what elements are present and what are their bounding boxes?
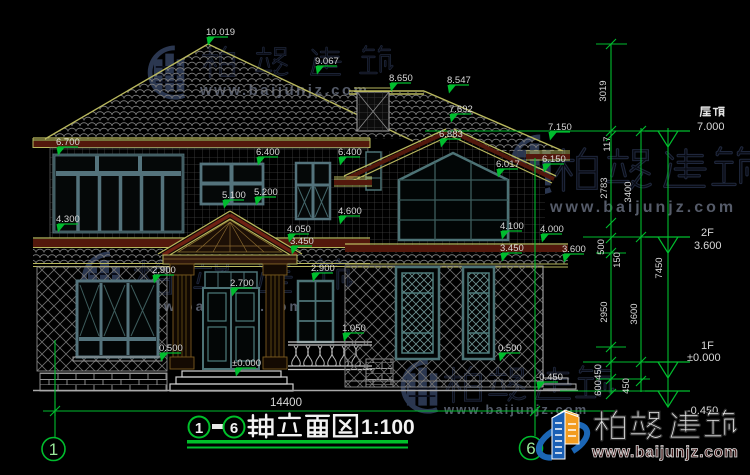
svg-text:3.450: 3.450 [500, 243, 524, 254]
svg-text:6.017: 6.017 [496, 159, 520, 170]
svg-text:1.050: 1.050 [342, 323, 366, 334]
svg-text:9.067: 9.067 [315, 56, 339, 67]
svg-text:4.300: 4.300 [56, 214, 80, 225]
svg-text:www.baijunjz.com: www.baijunjz.com [591, 444, 739, 461]
svg-text:3019: 3019 [598, 80, 609, 101]
svg-text:6.150: 6.150 [542, 154, 566, 165]
svg-text:6.400: 6.400 [256, 147, 280, 158]
svg-text:6: 6 [526, 439, 535, 458]
svg-text:2.900: 2.900 [152, 265, 176, 276]
svg-text:www.baijunjz.com: www.baijunjz.com [549, 199, 736, 216]
svg-text:3600: 3600 [629, 303, 640, 324]
svg-text:6.700: 6.700 [56, 137, 80, 148]
svg-text:6.400: 6.400 [338, 147, 362, 158]
svg-text:±0.000: ±0.000 [687, 352, 721, 364]
svg-text:4.100: 4.100 [500, 221, 524, 232]
svg-text:500: 500 [596, 239, 607, 255]
svg-text:10.019: 10.019 [206, 27, 235, 38]
svg-text:7.000: 7.000 [697, 121, 725, 133]
svg-text:4.000: 4.000 [540, 224, 564, 235]
svg-text:5.100: 5.100 [222, 190, 246, 201]
svg-text:7.692: 7.692 [449, 104, 473, 115]
svg-text:450: 450 [593, 364, 604, 380]
svg-text:3.600: 3.600 [694, 240, 722, 252]
svg-text:1: 1 [49, 440, 58, 459]
svg-text:±0.000: ±0.000 [232, 358, 261, 369]
svg-text:2.900: 2.900 [311, 263, 335, 274]
svg-text:3.450: 3.450 [290, 236, 314, 247]
svg-text:8.547: 8.547 [447, 75, 471, 86]
svg-text:0.500: 0.500 [498, 343, 522, 354]
svg-text:1:100: 1:100 [361, 416, 415, 439]
svg-text:117: 117 [602, 136, 613, 151]
svg-text:4.600: 4.600 [338, 206, 362, 217]
svg-text:3.600: 3.600 [562, 244, 586, 255]
svg-text:6.883: 6.883 [439, 129, 463, 140]
svg-text:2950: 2950 [599, 301, 610, 322]
svg-text:5.200: 5.200 [254, 187, 278, 198]
svg-text:-0.450: -0.450 [536, 372, 563, 383]
svg-text:14400: 14400 [270, 397, 302, 409]
svg-text:600: 600 [593, 380, 604, 396]
svg-text:0.500: 0.500 [159, 343, 183, 354]
svg-text:150: 150 [612, 252, 623, 268]
svg-text:2F: 2F [701, 227, 714, 239]
svg-text:7450: 7450 [654, 257, 665, 278]
svg-text:1F: 1F [701, 340, 714, 352]
svg-text:7.150: 7.150 [548, 122, 572, 133]
svg-text:2.700: 2.700 [230, 278, 254, 289]
svg-text:4.050: 4.050 [287, 224, 311, 235]
svg-text:3400: 3400 [623, 181, 634, 202]
svg-text:1: 1 [195, 420, 203, 437]
svg-text:450: 450 [621, 378, 632, 394]
svg-text:8.650: 8.650 [389, 73, 413, 84]
svg-text:2783: 2783 [599, 177, 610, 198]
svg-text:6: 6 [230, 420, 238, 437]
